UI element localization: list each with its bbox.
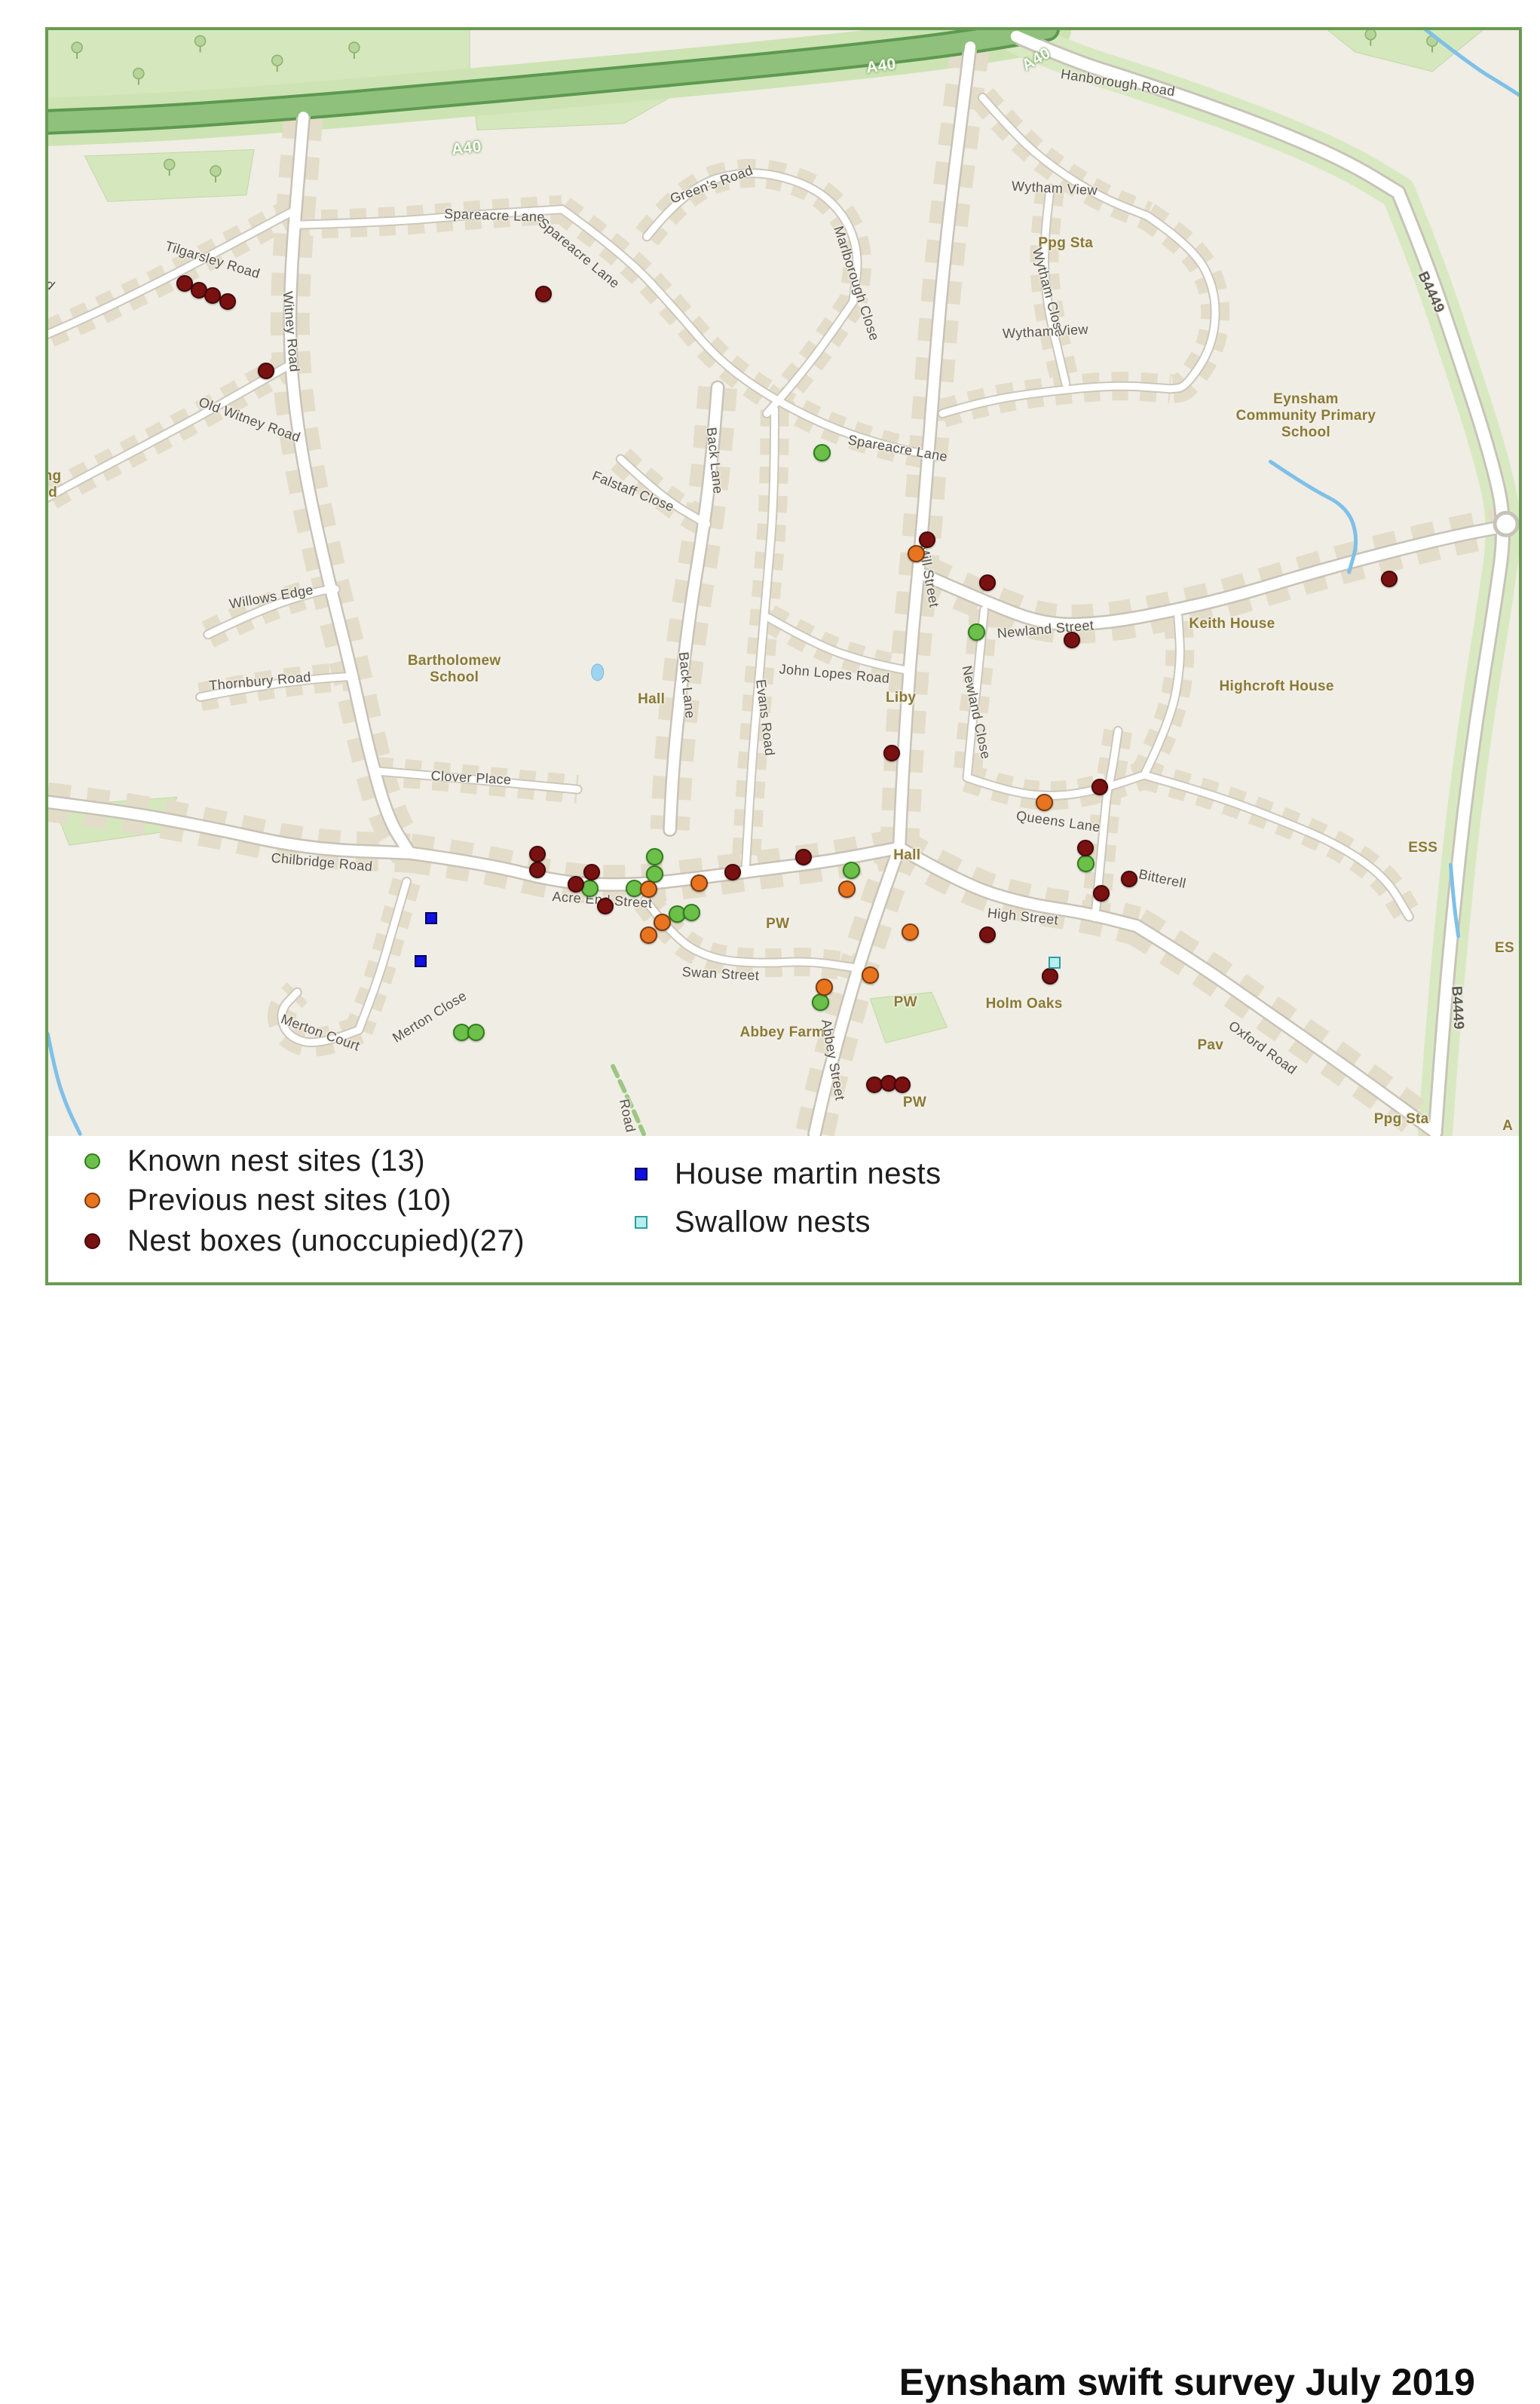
marker-previous-nest-site	[862, 966, 879, 984]
marker-unoccupied-nest-box	[535, 286, 552, 302]
legend-known-symbol	[84, 1153, 100, 1169]
marker-unoccupied-nest-box	[883, 745, 900, 761]
marker-unoccupied-nest-box	[979, 574, 996, 591]
legend-swallow-label: Swallow nests	[675, 1205, 871, 1239]
marker-house-martin-nest	[415, 955, 427, 967]
eynsham-swift-survey-map-page: { "title": "Eynsham swift survey July 20…	[0, 0, 1540, 1300]
legend-nest_box-label: Nest boxes (unoccupied)(27)	[127, 1224, 525, 1258]
map-overlay: A40A40A40Hanborough RoadWytham ViewPpg S…	[48, 30, 1519, 1136]
marker-previous-nest-site	[1036, 794, 1053, 811]
map-title: Eynsham swift survey July 2019	[899, 2360, 1475, 2404]
legend-item-known: Known nest sites (13)	[84, 1144, 425, 1178]
marker-unoccupied-nest-box	[979, 926, 996, 943]
marker-known-nest-site	[467, 1024, 485, 1041]
marker-known-nest-site	[843, 862, 860, 879]
marker-house-martin-nest	[425, 912, 437, 924]
legend-item-house_martin: House martin nests	[635, 1157, 941, 1190]
marker-unoccupied-nest-box	[919, 531, 935, 548]
legend-nest_box-symbol	[84, 1233, 100, 1249]
legend-swallow-symbol	[635, 1216, 648, 1229]
marker-unoccupied-nest-box	[204, 287, 221, 304]
marker-unoccupied-nest-box	[1064, 632, 1080, 648]
marker-previous-nest-site	[690, 874, 708, 892]
legend-item-swallow: Swallow nests	[635, 1205, 871, 1239]
marker-previous-nest-site	[640, 880, 657, 898]
marker-unoccupied-nest-box	[1077, 840, 1094, 856]
marker-previous-nest-site	[816, 978, 833, 996]
marker-swallow-nest	[1049, 957, 1061, 969]
marker-known-nest-site	[1077, 855, 1095, 872]
marker-unoccupied-nest-box	[529, 862, 546, 878]
marker-unoccupied-nest-box	[1093, 885, 1110, 902]
marker-unoccupied-nest-box	[1091, 779, 1108, 795]
legend-house_martin-label: House martin nests	[675, 1157, 941, 1191]
marker-unoccupied-nest-box	[258, 363, 274, 379]
map-canvas: A40A40A40Hanborough RoadWytham ViewPpg S…	[48, 30, 1519, 1136]
legend-previous-label: Previous nest sites (10)	[127, 1184, 452, 1217]
marker-unoccupied-nest-box	[1121, 871, 1137, 887]
marker-known-nest-site	[968, 623, 985, 641]
marker-previous-nest-site	[654, 914, 671, 931]
marker-unoccupied-nest-box	[568, 876, 584, 893]
marker-known-nest-site	[646, 865, 663, 883]
marker-unoccupied-nest-box	[1381, 571, 1398, 587]
marker-unoccupied-nest-box	[583, 864, 600, 880]
marker-previous-nest-site	[640, 926, 657, 944]
map-base-layer	[48, 30, 1519, 1136]
marker-unoccupied-nest-box	[894, 1076, 911, 1093]
legend-item-nest_box: Nest boxes (unoccupied)(27)	[84, 1224, 525, 1257]
legend-item-previous: Previous nest sites (10)	[84, 1184, 452, 1217]
legend-house_martin-symbol	[635, 1168, 648, 1181]
legend-known-label: Known nest sites (13)	[127, 1144, 425, 1178]
marker-known-nest-site	[646, 848, 663, 865]
legend-previous-symbol	[84, 1193, 100, 1208]
